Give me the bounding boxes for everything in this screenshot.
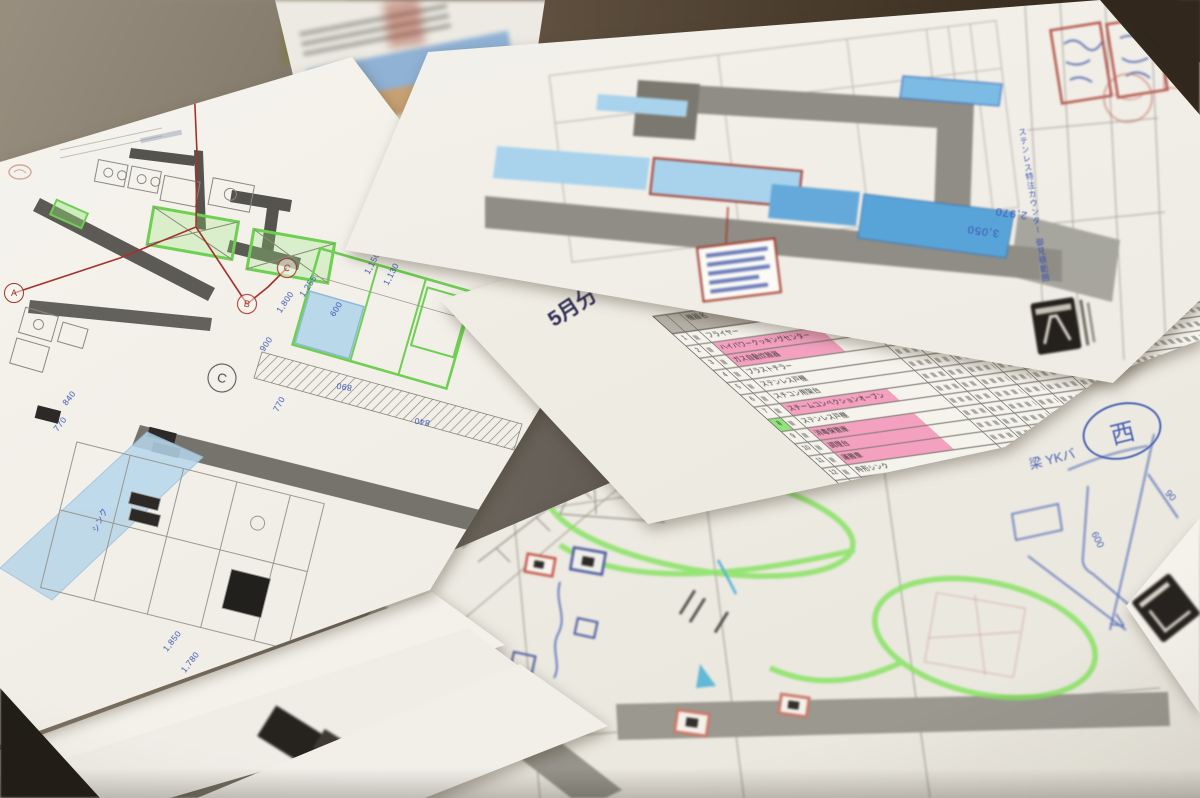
photo-of-architectural-drawings: 縮尺 1/30 (A3) 作成日 2021/01/13 B1 KEY 西 梁 Y…: [0, 0, 1200, 798]
vignette-overlay: [0, 0, 1200, 798]
